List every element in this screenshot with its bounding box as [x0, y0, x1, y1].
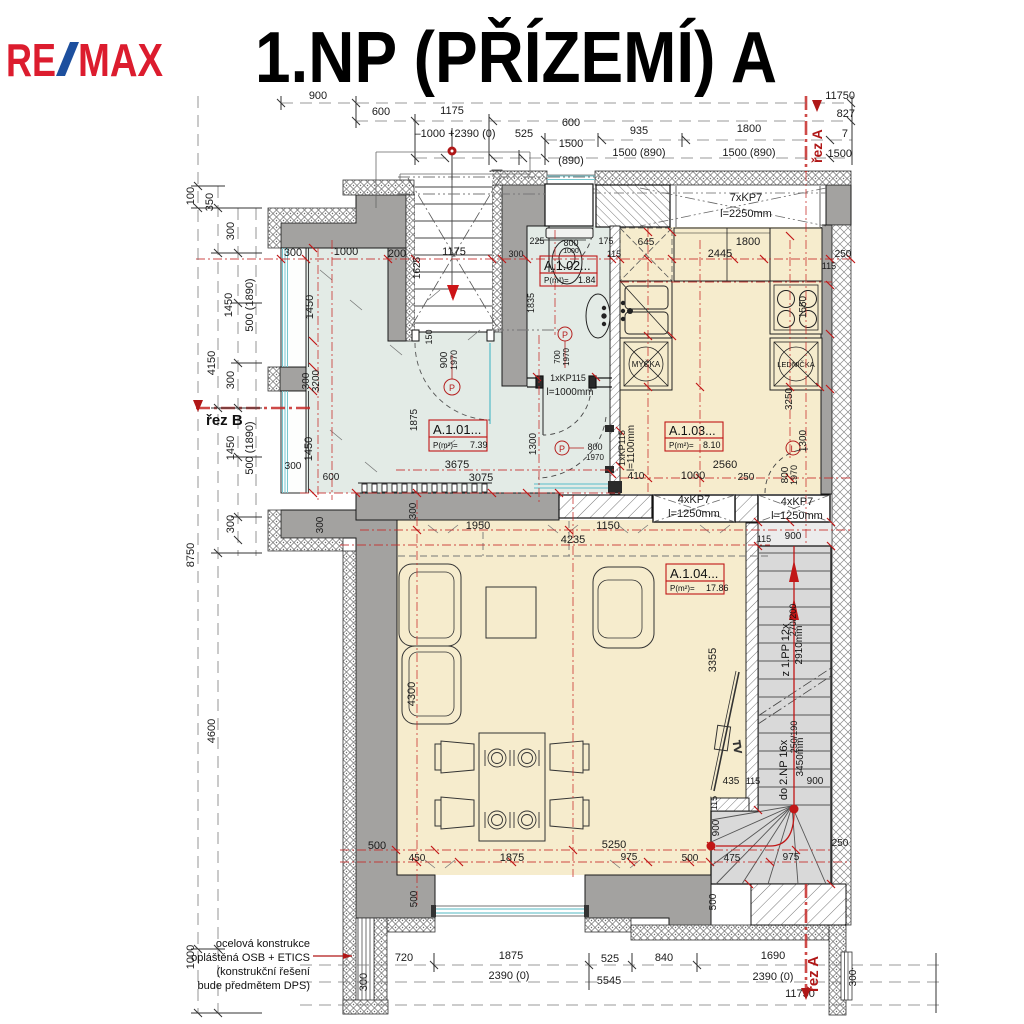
svg-text:2560: 2560 — [713, 459, 737, 471]
svg-text:1500: 1500 — [828, 148, 852, 160]
svg-text:2390 (0): 2390 (0) — [753, 971, 794, 983]
svg-text:525: 525 — [601, 953, 619, 965]
svg-text:opláštěná OSB + ETICS: opláštěná OSB + ETICS — [191, 952, 310, 964]
svg-text:935: 935 — [630, 125, 648, 137]
svg-text:11750: 11750 — [825, 90, 855, 102]
svg-text:1500 (890): 1500 (890) — [612, 147, 665, 159]
svg-text:MAX: MAX — [78, 34, 163, 86]
svg-text:2445: 2445 — [708, 248, 732, 260]
svg-text:600: 600 — [372, 106, 390, 118]
svg-text:300: 300 — [358, 973, 370, 991]
svg-text:900: 900 — [309, 90, 327, 102]
svg-text:1800: 1800 — [736, 236, 760, 248]
svg-text:1450: 1450 — [303, 437, 315, 461]
svg-text:MYČKA: MYČKA — [632, 360, 661, 369]
svg-text:800: 800 — [587, 442, 602, 452]
svg-text:1000: 1000 — [334, 246, 358, 258]
svg-text:ocelová konstrukce: ocelová konstrukce — [216, 938, 310, 950]
svg-text:300: 300 — [225, 371, 237, 389]
svg-text:P: P — [559, 444, 565, 454]
svg-text:1000: 1000 — [563, 248, 579, 255]
svg-text:17.86: 17.86 — [706, 583, 729, 593]
svg-text:700: 700 — [553, 350, 562, 364]
svg-text:1450: 1450 — [225, 436, 237, 460]
svg-text:řez B: řez B — [206, 412, 243, 429]
svg-text:L: L — [790, 444, 795, 454]
svg-text:P(m²)=: P(m²)= — [670, 584, 695, 593]
svg-text:115: 115 — [607, 249, 621, 259]
svg-text:115: 115 — [746, 776, 760, 786]
svg-text:řez A: řez A — [805, 956, 822, 992]
svg-text:200: 200 — [388, 248, 406, 260]
svg-text:475: 475 — [724, 853, 741, 864]
svg-text:827: 827 — [837, 108, 855, 120]
svg-text:300: 300 — [225, 222, 237, 240]
svg-text:500 (1890): 500 (1890) — [244, 421, 256, 474]
svg-text:900: 900 — [807, 776, 824, 787]
svg-text:115: 115 — [757, 534, 771, 544]
svg-text:P: P — [562, 330, 568, 340]
svg-text:P(m²)=: P(m²)= — [544, 276, 569, 285]
svg-text:1150: 1150 — [596, 520, 620, 532]
svg-text:1450: 1450 — [223, 293, 235, 317]
svg-text:115: 115 — [709, 796, 719, 810]
svg-text:225: 225 — [529, 236, 544, 246]
svg-text:–1000 +2390 (0): –1000 +2390 (0) — [414, 128, 495, 140]
svg-text:3200: 3200 — [311, 369, 322, 392]
svg-text:350: 350 — [204, 193, 216, 211]
svg-text:1450: 1450 — [304, 295, 316, 319]
svg-text:1175: 1175 — [442, 246, 466, 258]
svg-text:250: 250 — [835, 249, 852, 260]
svg-text:900: 900 — [711, 819, 722, 836]
svg-text:P(m²)=: P(m²)= — [433, 441, 458, 450]
svg-text:1950: 1950 — [466, 520, 490, 532]
svg-text:8750: 8750 — [185, 543, 197, 567]
svg-text:1xKP115: 1xKP115 — [550, 373, 586, 383]
svg-text:1970: 1970 — [586, 453, 604, 462]
svg-text:4150: 4150 — [206, 351, 218, 375]
svg-text:A.1.04...: A.1.04... — [670, 566, 718, 581]
svg-text:500 (1890): 500 (1890) — [244, 278, 256, 331]
svg-text:5545: 5545 — [597, 975, 621, 987]
svg-text:1175: 1175 — [440, 105, 464, 117]
svg-text:1300: 1300 — [798, 429, 809, 452]
svg-text:1500: 1500 — [559, 138, 583, 150]
svg-text:840: 840 — [655, 952, 673, 964]
svg-text:1500 (890): 1500 (890) — [722, 147, 775, 159]
svg-text:300: 300 — [848, 969, 859, 986]
svg-text:řez A: řez A — [809, 129, 825, 163]
svg-text:500: 500 — [682, 853, 699, 864]
svg-text:300: 300 — [508, 249, 523, 259]
svg-text:1800: 1800 — [737, 123, 761, 135]
svg-text:3250: 3250 — [784, 387, 795, 410]
svg-text:4xKP7: 4xKP7 — [781, 496, 813, 508]
svg-text:115: 115 — [822, 261, 836, 271]
svg-text:1550: 1550 — [798, 295, 809, 318]
svg-text:720: 720 — [395, 952, 413, 964]
svg-text:4300: 4300 — [406, 682, 418, 706]
svg-text:A.1.02...: A.1.02... — [544, 259, 591, 273]
svg-text:175: 175 — [598, 236, 613, 246]
svg-text:3675: 3675 — [445, 459, 469, 471]
svg-text:500: 500 — [409, 890, 420, 907]
svg-text:300: 300 — [315, 516, 326, 533]
svg-text:600: 600 — [562, 117, 580, 129]
svg-text:435: 435 — [723, 776, 740, 787]
svg-text:450: 450 — [409, 853, 426, 864]
svg-text:l=1250mm: l=1250mm — [668, 508, 720, 520]
svg-text:1875: 1875 — [500, 852, 524, 864]
svg-text:975: 975 — [783, 852, 800, 863]
svg-text:410: 410 — [628, 471, 645, 482]
svg-text:600: 600 — [323, 472, 340, 483]
svg-text:7.39: 7.39 — [470, 440, 488, 450]
svg-text:1.NP (PŘÍZEMÍ) A: 1.NP (PŘÍZEMÍ) A — [255, 17, 777, 98]
svg-text:1970: 1970 — [449, 350, 459, 370]
svg-text:A.1.01...: A.1.01... — [433, 422, 481, 437]
svg-text:TV: TV — [730, 740, 743, 755]
svg-text:LEDNIČKA: LEDNIČKA — [777, 360, 815, 369]
svg-text:300: 300 — [408, 502, 419, 519]
svg-text:3355: 3355 — [707, 648, 719, 672]
svg-text:l=1100mm: l=1100mm — [626, 425, 637, 471]
svg-text:300: 300 — [225, 515, 237, 533]
svg-text:1970: 1970 — [562, 348, 571, 366]
svg-text:(konstrukční řešení: (konstrukční řešení — [216, 966, 310, 978]
svg-text:525: 525 — [515, 128, 533, 140]
svg-text:3075: 3075 — [469, 472, 493, 484]
svg-text:100: 100 — [185, 187, 197, 205]
svg-text:975: 975 — [621, 852, 638, 863]
svg-text:300: 300 — [285, 461, 302, 472]
svg-text:l=1000mm: l=1000mm — [547, 387, 594, 398]
svg-text:4xKP7: 4xKP7 — [678, 494, 710, 506]
svg-text:1625: 1625 — [412, 256, 423, 279]
svg-text:l=2250mm: l=2250mm — [720, 208, 772, 220]
svg-text:1.84: 1.84 — [578, 275, 596, 285]
svg-text:150: 150 — [424, 329, 434, 344]
svg-text:250: 250 — [738, 472, 755, 483]
svg-text:7: 7 — [842, 128, 848, 140]
svg-text:3450mm: 3450mm — [795, 738, 806, 777]
svg-text:(890): (890) — [558, 155, 584, 167]
svg-text:2910mm: 2910mm — [794, 626, 805, 665]
svg-text:1875: 1875 — [409, 408, 420, 431]
svg-text:1835: 1835 — [526, 293, 536, 313]
svg-text:500: 500 — [368, 840, 386, 852]
svg-text:300: 300 — [284, 247, 302, 259]
svg-text:1300: 1300 — [528, 432, 539, 455]
svg-text:8.10: 8.10 — [703, 440, 721, 450]
svg-text:P(m²)=: P(m²)= — [669, 441, 694, 450]
svg-text:250: 250 — [832, 838, 849, 849]
svg-text:645: 645 — [638, 237, 655, 248]
svg-text:1690: 1690 — [761, 950, 785, 962]
svg-text:RE: RE — [6, 34, 56, 86]
svg-text:4235: 4235 — [561, 534, 585, 546]
svg-text:1875: 1875 — [499, 950, 523, 962]
svg-text:4600: 4600 — [206, 719, 218, 743]
svg-text:l=1250mm: l=1250mm — [771, 510, 823, 522]
svg-text:1000: 1000 — [681, 470, 705, 482]
svg-text:900: 900 — [785, 531, 802, 542]
svg-text:500: 500 — [708, 893, 719, 910]
svg-text:800: 800 — [563, 238, 578, 248]
svg-text:2390 (0): 2390 (0) — [489, 970, 530, 982]
svg-text:7xKP7: 7xKP7 — [730, 192, 762, 204]
svg-text:bude předmětem DPS): bude předmětem DPS) — [198, 980, 311, 992]
svg-text:P: P — [449, 383, 455, 393]
svg-text:5250: 5250 — [602, 839, 626, 851]
svg-text:1970: 1970 — [789, 465, 799, 485]
svg-text:A.1.03...: A.1.03... — [669, 424, 716, 438]
